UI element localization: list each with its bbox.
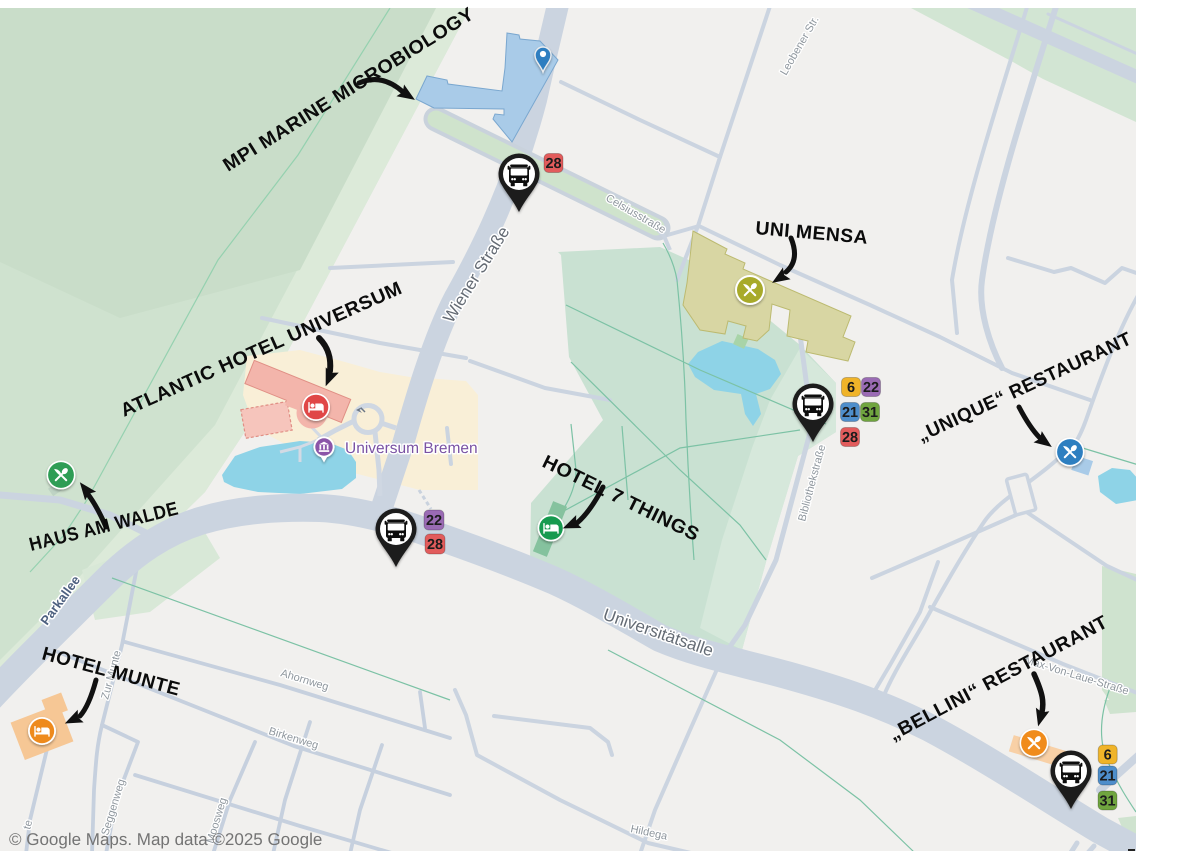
svg-text:28: 28 [545, 156, 561, 172]
svg-text:22: 22 [863, 380, 879, 396]
svg-text:22: 22 [426, 513, 442, 529]
svg-text:6: 6 [847, 380, 855, 396]
svg-text:21: 21 [1099, 768, 1115, 784]
svg-text:28: 28 [427, 537, 443, 553]
svg-text:31: 31 [1099, 793, 1115, 809]
svg-text:Universum Bremen: Universum Bremen [345, 440, 478, 457]
svg-text:6: 6 [1104, 747, 1112, 763]
svg-text:© Google Maps. Map data ©2025: © Google Maps. Map data ©2025 Google [9, 830, 322, 849]
svg-text:21: 21 [842, 405, 858, 421]
svg-text:31: 31 [862, 405, 878, 421]
svg-text:28: 28 [842, 430, 858, 446]
